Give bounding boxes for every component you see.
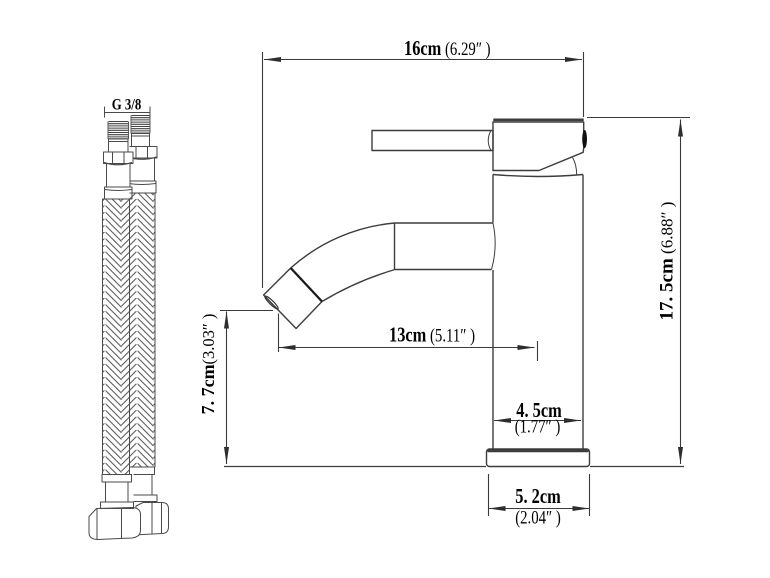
svg-text:5. 2cm: 5. 2cm <box>515 485 561 508</box>
svg-text:13cm (5.11″ ): 13cm (5.11″ ) <box>389 324 475 347</box>
svg-text:7. 7cm(3.03″ ): 7. 7cm(3.03″ ) <box>198 314 218 415</box>
svg-text:(1.77″ ): (1.77″ ) <box>515 416 561 437</box>
svg-text:(2.04″ ): (2.04″ ) <box>515 507 561 528</box>
svg-text:G 3/8: G 3/8 <box>112 96 141 114</box>
svg-text:16cm (6.29″ ): 16cm (6.29″ ) <box>404 37 491 60</box>
svg-text:17. 5cm (6.88″ ): 17. 5cm (6.88″ ) <box>657 202 678 321</box>
